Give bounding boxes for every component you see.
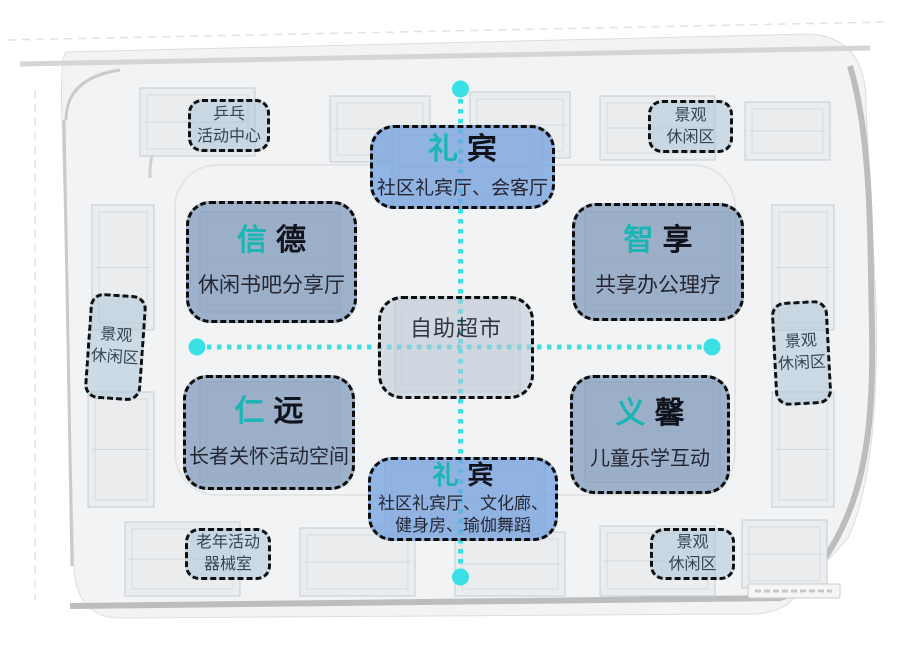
amenity-landscape-top-right: 景观 休闲区 — [648, 100, 733, 153]
zone-title-rest: 远 — [274, 395, 304, 428]
zone-reception-bottom-subtitle-1: 社区礼宾厅、文化廊、 — [378, 493, 548, 514]
zone-title-rest: 馨 — [655, 397, 685, 430]
amenity-label: 活动中心 — [197, 126, 261, 148]
zone-reception-top: 礼宾 社区礼宾厅、会客厅 — [370, 125, 555, 209]
zone-yixin-subtitle: 儿童乐学互动 — [590, 442, 710, 471]
amenity-label: 乒乓 — [213, 104, 245, 126]
zone-zhixiang-subtitle: 共享办公理疗 — [595, 269, 721, 299]
zone-renyuan-subtitle: 长者关怀活动空间 — [189, 440, 349, 469]
zone-title-rest: 宾 — [467, 133, 497, 166]
zone-zhixiang: 智享 共享办公理疗 — [572, 203, 744, 321]
zone-title-accent: 智 — [624, 224, 654, 257]
zone-renyuan: 仁远 长者关怀活动空间 — [183, 375, 355, 490]
zone-reception-top-subtitle: 社区礼宾厅、会客厅 — [377, 173, 548, 200]
zone-title-rest: 宾 — [468, 460, 494, 490]
amenity-label: 休闲区 — [90, 345, 139, 370]
zone-title-accent: 义 — [616, 397, 646, 430]
zone-title-rest: 德 — [276, 224, 306, 257]
zone-xinde-title: 信德 — [237, 225, 306, 257]
amenity-label: 景观 — [100, 324, 133, 348]
amenity-label: 景观 — [784, 331, 817, 354]
zone-reception-bottom-title: 礼宾 — [432, 462, 493, 489]
zone-yixin-title: 义馨 — [616, 398, 685, 430]
zone-market: 自助超市 — [378, 296, 534, 399]
site-plan-canvas: 礼宾 社区礼宾厅、会客厅 信德 休闲书吧分享厅 智享 共享办公理疗 自助超市 仁… — [0, 0, 900, 646]
zone-yixin: 义馨 儿童乐学互动 — [570, 375, 730, 494]
zone-reception-bottom: 礼宾 社区礼宾厅、文化廊、 健身房、瑜伽舞蹈 — [368, 457, 558, 541]
zone-title-accent: 礼 — [428, 133, 458, 166]
amenity-label: 老年活动 — [196, 532, 260, 554]
zone-zhixiang-title: 智享 — [624, 225, 693, 257]
zone-reception-bottom-subtitle-2: 健身房、瑜伽舞蹈 — [395, 515, 531, 536]
zone-title-rest: 享 — [663, 224, 693, 257]
zone-title-accent: 信 — [237, 224, 267, 257]
zone-title-accent: 礼 — [432, 460, 458, 490]
amenity-landscape-right: 景观 休闲区 — [770, 300, 832, 407]
amenity-landscape-bottom-right: 景观 休闲区 — [650, 528, 735, 580]
amenity-label: 休闲区 — [668, 554, 716, 576]
amenity-label: 景观 — [676, 532, 708, 554]
amenity-label: 休闲区 — [778, 352, 827, 376]
axis-dot-bottom — [452, 569, 469, 586]
amenity-pingpong: 乒乓 活动中心 — [188, 99, 270, 152]
axis-dot-right — [704, 339, 721, 356]
amenity-label: 器械室 — [204, 554, 252, 576]
amenity-label: 景观 — [674, 105, 706, 127]
axis-dot-top — [452, 81, 469, 98]
amenity-label: 休闲区 — [666, 127, 714, 149]
zone-market-label: 自助超市 — [410, 311, 502, 343]
zone-reception-top-title: 礼宾 — [428, 134, 497, 166]
zone-xinde-subtitle: 休闲书吧分享厅 — [198, 269, 345, 299]
amenity-landscape-left: 景观 休闲区 — [83, 292, 147, 402]
amenity-elderly-equipment: 老年活动 器械室 — [185, 528, 271, 580]
zone-renyuan-title: 仁远 — [235, 396, 304, 428]
zone-title-accent: 仁 — [235, 395, 265, 428]
zone-xinde: 信德 休闲书吧分享厅 — [186, 201, 357, 323]
axis-dot-left — [189, 339, 206, 356]
